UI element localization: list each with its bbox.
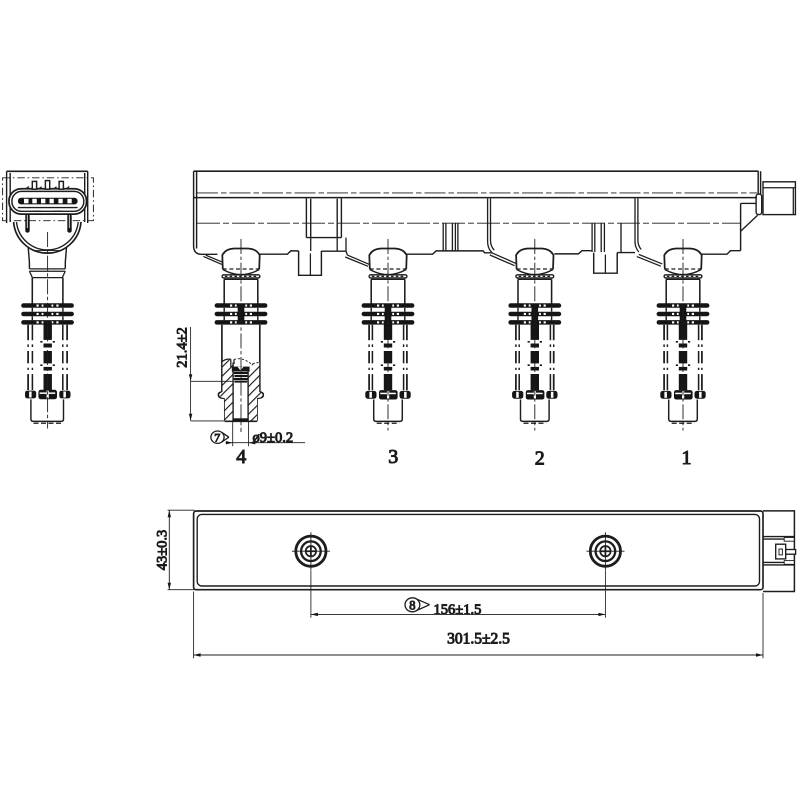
svg-text:1: 1 [682, 447, 692, 469]
svg-text:7: 7 [214, 430, 220, 444]
svg-text:ø9±0.2: ø9±0.2 [253, 430, 294, 446]
svg-text:3: 3 [388, 446, 398, 468]
svg-text:301.5±2.5: 301.5±2.5 [447, 631, 510, 648]
svg-text:4: 4 [236, 446, 246, 468]
svg-text:8: 8 [409, 598, 415, 612]
svg-text:43±0.3: 43±0.3 [155, 530, 171, 571]
svg-text:156±1.5: 156±1.5 [434, 602, 482, 618]
svg-text:21.4±2: 21.4±2 [175, 327, 191, 368]
svg-text:2: 2 [535, 448, 545, 470]
